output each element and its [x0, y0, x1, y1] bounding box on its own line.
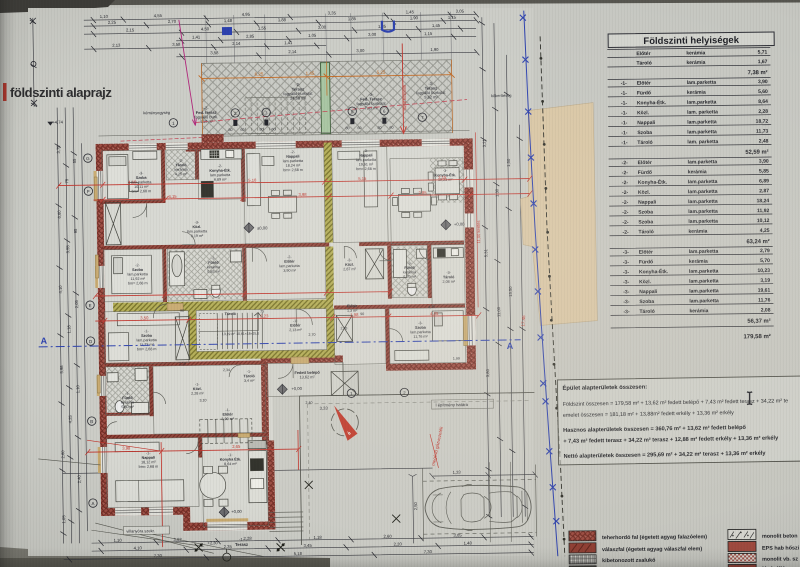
svg-text:F: F: [87, 189, 90, 194]
svg-text:lam.parketta: lam.parketta: [689, 288, 719, 294]
svg-text:75: 75: [64, 178, 69, 183]
svg-text:B: B: [90, 419, 93, 424]
svg-text:2,28 m²: 2,28 m²: [191, 391, 204, 395]
svg-text:1,88: 1,88: [278, 17, 287, 22]
svg-text:Földszinti helyiségek: Földszinti helyiségek: [643, 35, 739, 47]
svg-text:Előtér: Előtér: [636, 51, 650, 57]
svg-text:4,35: 4,35: [428, 305, 435, 309]
svg-text:A: A: [41, 336, 48, 346]
svg-text:10,23: 10,23: [757, 268, 770, 274]
svg-text:Előtér: Előtér: [638, 160, 652, 166]
svg-text:-1-: -1-: [621, 120, 628, 126]
svg-text:Tároló: Tároló: [225, 312, 237, 316]
svg-text:2,85: 2,85: [418, 190, 427, 195]
svg-text:2,10: 2,10: [179, 362, 186, 366]
svg-text:8,64: 8,64: [758, 99, 768, 105]
svg-text:kéményegység: kéményegység: [143, 110, 170, 115]
svg-text:Közl.: Közl.: [638, 190, 651, 196]
svg-text:kőkerítésvg: kőkerítésvg: [491, 93, 512, 98]
svg-text:1,05: 1,05: [308, 33, 317, 38]
svg-text:7,30: 7,30: [424, 549, 433, 554]
svg-text:1,45: 1,45: [406, 9, 415, 14]
svg-text:-3-: -3-: [623, 270, 630, 276]
svg-text:+4,74: +4,74: [52, 119, 63, 124]
svg-text:-2-: -2-: [622, 190, 629, 196]
svg-text:5,31: 5,31: [483, 248, 488, 257]
svg-text:11,00 kerítés: 11,00 kerítés: [476, 220, 481, 243]
svg-text:lam.parketta: lam.parketta: [187, 229, 208, 233]
svg-text:2,48: 2,48: [340, 326, 347, 330]
svg-text:bm= 2,68 m: bm= 2,68 m: [139, 465, 159, 469]
svg-text:3,80: 3,80: [485, 368, 490, 377]
svg-text:bm= 2,68 m: bm= 2,68 m: [137, 347, 157, 351]
svg-text:4,35: 4,35: [430, 311, 439, 316]
svg-text:5,18: 5,18: [294, 551, 303, 556]
svg-text:+2,30: +2,30: [208, 540, 219, 545]
svg-text:5,60: 5,60: [758, 89, 768, 95]
svg-text:80: 80: [377, 126, 381, 130]
svg-text:63,24 m²: 63,24 m²: [746, 238, 769, 245]
svg-text:13,62 m²: 13,62 m²: [299, 374, 315, 379]
svg-text:1,05: 1,05: [61, 515, 66, 524]
svg-text:4,25: 4,25: [68, 415, 73, 424]
svg-text:7,30: 7,30: [154, 553, 163, 558]
svg-text:kerámia: kerámia: [686, 50, 705, 56]
svg-text:1,33: 1,33: [453, 470, 462, 475]
svg-text:Terasz: Terasz: [235, 542, 248, 547]
svg-text:lam.parketta: lam.parketta: [410, 330, 431, 334]
svg-text:60: 60: [389, 126, 393, 130]
svg-text:tűzfal központi: tűzfal központi: [402, 85, 407, 111]
svg-text:1,90: 1,90: [410, 15, 419, 20]
svg-text:lam.parketta: lam.parketta: [356, 158, 377, 162]
svg-text:1,99: 1,99: [453, 357, 460, 361]
svg-text:1,98: 1,98: [350, 312, 359, 317]
svg-text:lam.parketta: lam.parketta: [689, 298, 719, 304]
svg-text:3,90: 3,90: [759, 159, 769, 165]
svg-text:3,58: 3,58: [172, 42, 181, 47]
svg-text:2,60: 2,60: [383, 534, 392, 539]
svg-text:3,19: 3,19: [760, 278, 770, 284]
svg-text:4,50: 4,50: [201, 26, 210, 31]
svg-text:55: 55: [72, 158, 77, 163]
svg-text:lam.parketta: lam.parketta: [688, 189, 718, 195]
svg-text:-1-: -1-: [621, 140, 628, 146]
svg-text:-1-: -1-: [621, 91, 628, 97]
svg-text:Szoba: Szoba: [637, 130, 652, 136]
svg-text:Tároló: Tároló: [638, 229, 653, 235]
svg-text:2,70: 2,70: [168, 19, 177, 24]
svg-text:Nappali: Nappali: [638, 200, 657, 206]
svg-text:1,48: 1,48: [224, 18, 233, 23]
svg-text:Közl.: Közl.: [637, 110, 650, 116]
svg-text:-1-: -1-: [621, 130, 628, 136]
svg-text:kerámia: kerámia: [686, 60, 705, 66]
svg-text:1,18: 1,18: [66, 325, 71, 334]
svg-text:1,45: 1,45: [432, 23, 441, 28]
svg-text:Konyha-Étk.: Konyha-Étk.: [209, 168, 231, 173]
svg-text:EPS hab hőszi: EPS hab hőszi: [762, 545, 800, 551]
svg-text:11,76 m²: 11,76 m²: [413, 335, 428, 339]
svg-text:2,08: 2,08: [761, 307, 771, 313]
svg-text:-2-: -2-: [622, 170, 629, 176]
svg-text:lam.parketta: lam.parketta: [127, 272, 148, 276]
svg-text:+0,00: +0,00: [231, 509, 242, 514]
svg-text:-3-: -3-: [623, 279, 630, 285]
svg-text:56,37 m²: 56,37 m²: [747, 318, 770, 325]
svg-text:4,15: 4,15: [128, 179, 137, 184]
svg-text:kerámia: kerámia: [689, 259, 708, 265]
svg-text:-1-: -1-: [621, 81, 628, 87]
svg-text:1,15: 1,15: [448, 15, 457, 20]
svg-text:17,46: 17,46: [520, 315, 526, 327]
svg-text:1,55: 1,55: [258, 25, 267, 30]
svg-text:80: 80: [259, 128, 263, 132]
svg-text:lam.parketta: lam.parketta: [687, 119, 717, 125]
svg-text:lam.parketta: lam.parketta: [688, 179, 718, 185]
svg-text:2,25: 2,25: [108, 20, 117, 25]
svg-text:lam. parketta: lam. parketta: [687, 139, 718, 145]
svg-text:90: 90: [180, 309, 184, 313]
svg-text:19,61: 19,61: [758, 288, 771, 294]
svg-text:2,23: 2,23: [260, 313, 269, 318]
svg-text:4,25: 4,25: [760, 228, 770, 234]
svg-text:lam.parketta: lam.parketta: [688, 199, 718, 205]
svg-text:9,62 m²: 9,62 m²: [424, 94, 438, 99]
svg-text:11,76: 11,76: [758, 298, 771, 304]
svg-text:2,14: 2,14: [232, 41, 241, 46]
svg-text:2,34: 2,34: [223, 368, 230, 372]
svg-text:Előtér: Előtér: [222, 412, 233, 416]
svg-text:villanyóra szekr.: villanyóra szekr.: [126, 528, 155, 533]
svg-text:3,33: 3,33: [320, 406, 329, 411]
svg-text:lam.parketta: lam.parketta: [687, 129, 717, 135]
svg-text:2,87: 2,87: [759, 188, 769, 194]
svg-text:2,08 m²: 2,08 m²: [442, 280, 455, 284]
svg-text:-2-: -2-: [622, 180, 629, 186]
svg-text:2,65: 2,65: [232, 444, 241, 449]
svg-text:1,67: 1,67: [758, 59, 768, 65]
svg-text:lam.parketta: lam.parketta: [688, 209, 718, 215]
svg-text:1,48: 1,48: [464, 540, 473, 545]
svg-text:lam.parketta: lam.parketta: [689, 268, 719, 274]
svg-text:A: A: [91, 501, 94, 506]
svg-text:lam.parketta: lam.parketta: [688, 219, 718, 225]
svg-text:Tároló: Tároló: [636, 60, 651, 66]
svg-text:60: 60: [271, 127, 275, 131]
svg-text:2,85: 2,85: [246, 34, 255, 39]
svg-text:+0,00: +0,00: [291, 386, 302, 391]
svg-text:1,41: 1,41: [284, 40, 293, 45]
svg-text:-2-: -2-: [622, 160, 629, 166]
svg-text:3,35: 3,35: [328, 10, 337, 15]
svg-text:3,00: 3,00: [356, 48, 365, 53]
svg-text:3,45: 3,45: [304, 543, 313, 548]
svg-text:lam. parketta: lam. parketta: [687, 109, 718, 115]
svg-text:1,10: 1,10: [114, 538, 123, 543]
svg-text:lam.parketta: lam.parketta: [687, 99, 717, 105]
svg-text:18,72: 18,72: [756, 119, 769, 125]
svg-text:1,30: 1,30: [494, 188, 499, 197]
svg-text:95: 95: [73, 228, 78, 233]
svg-text:4,10: 4,10: [58, 285, 63, 294]
svg-text:lam.parketta: lam.parketta: [689, 249, 719, 255]
svg-text:-3-: -3-: [623, 260, 630, 266]
svg-text:6,89: 6,89: [759, 178, 769, 184]
svg-text:80: 80: [228, 128, 232, 132]
svg-text:2,35: 2,35: [224, 544, 233, 549]
svg-text:-2-: -2-: [622, 230, 629, 236]
svg-text:2,60: 2,60: [60, 450, 65, 459]
svg-text:Fürdő: Fürdő: [639, 259, 653, 265]
svg-text:1,85: 1,85: [348, 16, 357, 21]
svg-text:kerámia: kerámia: [689, 308, 708, 314]
svg-text:2,28: 2,28: [758, 109, 768, 115]
svg-text:4,10: 4,10: [134, 545, 143, 550]
svg-text:válaszfal (égetett agyag válas: válaszfal (égetett agyag válaszfal elem): [602, 546, 702, 553]
svg-text:2,13 m²: 2,13 m²: [289, 328, 302, 332]
svg-text:18,24: 18,24: [757, 198, 770, 204]
svg-text:24,60 m²: 24,60 m²: [290, 95, 307, 100]
svg-text:90: 90: [360, 312, 364, 316]
svg-text:3,50: 3,50: [140, 315, 149, 320]
svg-text:10,12: 10,12: [757, 218, 770, 224]
svg-text:1,15: 1,15: [424, 31, 433, 36]
svg-text:földszinti alaprajz: földszinti alaprajz: [10, 85, 112, 100]
svg-text:Nappali: Nappali: [637, 120, 656, 126]
svg-text:Előtér: Előtér: [639, 249, 653, 255]
svg-text:-3-: -3-: [623, 309, 630, 315]
svg-text:1,50: 1,50: [506, 158, 511, 167]
svg-text:1,41: 1,41: [192, 34, 201, 39]
svg-text:lam.parketta: lam.parketta: [283, 159, 304, 163]
svg-text:8,64 m²: 8,64 m²: [224, 462, 237, 466]
svg-text:4,25 m²: 4,25 m²: [175, 172, 188, 176]
svg-text:5,60 m²: 5,60 m²: [121, 405, 134, 409]
svg-text:1,18: 1,18: [313, 535, 322, 540]
svg-text:2,15: 2,15: [438, 175, 447, 180]
svg-text:3,90 m²: 3,90 m²: [283, 269, 296, 273]
svg-text:Előtér: Előtér: [347, 304, 358, 308]
svg-text:lam.parketta: lam.parketta: [688, 159, 718, 165]
svg-text:Tároló: Tároló: [637, 140, 652, 146]
svg-text:6,89 m²: 6,89 m²: [214, 178, 227, 182]
svg-text:monolit vb. sz: monolit vb. sz: [762, 556, 798, 562]
svg-text:lam.parketta: lam.parketta: [279, 264, 300, 268]
svg-text:kerámia: kerámia: [688, 229, 707, 235]
svg-text:2,28: 2,28: [243, 536, 252, 541]
svg-text:6,60: 6,60: [57, 210, 62, 219]
svg-text:3,05: 3,05: [456, 9, 465, 14]
svg-text:kibetonozott zsalukő: kibetonozott zsalukő: [602, 558, 656, 564]
svg-text:7,38 m²: 7,38 m²: [748, 69, 768, 76]
svg-text:Előtér: Előtér: [284, 260, 295, 264]
svg-text:bm= 2,68 m: bm= 2,68 m: [132, 189, 152, 193]
svg-text:Szoba: Szoba: [638, 219, 653, 225]
svg-text:G: G: [86, 156, 90, 161]
svg-text:5,70: 5,70: [760, 258, 770, 264]
svg-text:11,92: 11,92: [757, 208, 770, 214]
svg-text:-2-: -2-: [622, 210, 629, 216]
svg-text:-3-: -3-: [623, 299, 630, 305]
svg-text:Közl.: Közl.: [345, 263, 354, 267]
svg-text:-3-: -3-: [623, 289, 630, 295]
svg-text:3,4 m²: 3,4 m²: [244, 379, 255, 383]
svg-text:6,25: 6,25: [255, 72, 264, 77]
svg-text:Konyha Étk.: Konyha Étk.: [220, 456, 241, 461]
svg-text:1,10: 1,10: [75, 384, 80, 393]
svg-text:lam.parketta: lam.parketta: [210, 173, 231, 177]
svg-text:Fürdő: Fürdő: [638, 170, 652, 176]
svg-text:60: 60: [357, 126, 361, 130]
svg-text:2,05: 2,05: [74, 299, 79, 308]
svg-text:2,50: 2,50: [413, 501, 418, 510]
svg-text:3,58: 3,58: [210, 50, 219, 55]
svg-text:-3-: -3-: [623, 250, 630, 256]
svg-text:Közl.: Közl.: [639, 279, 652, 285]
svg-text:monolit beton: monolit beton: [762, 533, 798, 539]
svg-text:lam.parketta: lam.parketta: [136, 338, 157, 342]
svg-text:Közl.: Közl.: [192, 225, 201, 229]
svg-text:3,00: 3,00: [318, 25, 327, 30]
svg-text:5,85: 5,85: [759, 168, 769, 174]
svg-text:4,15: 4,15: [168, 194, 177, 199]
svg-text:Előtér: Előtér: [290, 323, 301, 327]
svg-text:kerámia: kerámia: [687, 90, 706, 96]
svg-text:-1-: -1-: [621, 101, 628, 107]
svg-text:4,55: 4,55: [154, 13, 163, 18]
svg-text:3,90 m²: 3,90 m²: [221, 417, 234, 421]
svg-text:Tároló: Tároló: [639, 309, 654, 315]
svg-text:52,59 m²: 52,59 m²: [745, 149, 768, 156]
svg-text:l építmény határa: l építmény határa: [436, 402, 469, 407]
svg-text:bm= 2,68 m: bm= 2,68 m: [283, 168, 303, 172]
svg-text:-2-: -2-: [622, 200, 629, 206]
svg-text:E: E: [89, 303, 92, 308]
svg-text:2,40: 2,40: [77, 474, 82, 483]
svg-text:60: 60: [240, 128, 244, 132]
svg-text:Előtér: Előtér: [637, 80, 651, 86]
svg-text:kerámia: kerámia: [688, 169, 707, 175]
svg-text:4,95: 4,95: [242, 12, 251, 17]
svg-text:lam.parketta: lam.parketta: [687, 80, 717, 86]
svg-text:11,00: 11,00: [496, 306, 501, 317]
svg-text:5,98: 5,98: [59, 365, 64, 374]
svg-text:3,90: 3,90: [758, 79, 768, 85]
svg-text:3,19 m²: 3,19 m²: [191, 234, 204, 238]
svg-text:2,48: 2,48: [759, 138, 769, 144]
svg-text:5,85 m²: 5,85 m²: [207, 270, 220, 274]
svg-text:5,25: 5,25: [377, 70, 386, 75]
svg-text:-1-: -1-: [621, 110, 628, 116]
svg-text:2,79: 2,79: [760, 248, 770, 254]
svg-text:±0,00: ±0,00: [257, 225, 268, 230]
svg-text:2,40: 2,40: [305, 401, 312, 405]
svg-text:5,10: 5,10: [248, 178, 257, 183]
svg-text:Szoba: Szoba: [638, 209, 653, 215]
svg-text:3,10: 3,10: [199, 398, 206, 402]
svg-text:2,87 m²: 2,87 m²: [343, 267, 356, 271]
svg-text:5,71: 5,71: [758, 50, 768, 56]
svg-text:Közl.: Közl.: [193, 387, 202, 391]
svg-text:80: 80: [345, 126, 349, 130]
svg-text:Fürdő: Fürdő: [637, 90, 651, 96]
svg-text:3,98: 3,98: [298, 192, 307, 197]
svg-text:2,15: 2,15: [126, 27, 135, 32]
svg-text:5,70 m²: 5,70 m²: [403, 275, 416, 279]
svg-text:A: A: [507, 341, 514, 351]
svg-text:13,19 m² 10,61×18=25,0: 13,19 m² 10,61×18=25,0: [222, 332, 259, 337]
svg-text:Szoba: Szoba: [639, 299, 654, 305]
svg-text:11,73: 11,73: [756, 129, 769, 135]
svg-text:bm= 2,68 m: bm= 2,68 m: [128, 281, 148, 285]
svg-text:2,70: 2,70: [308, 333, 315, 337]
svg-text:teherhordó fal (égetett agyag: teherhordó fal (égetett agyag falazóelem…: [602, 534, 707, 541]
svg-text:lam.parketta: lam.parketta: [689, 278, 719, 284]
svg-text:bm= 2,68 m: bm= 2,68 m: [356, 167, 376, 171]
svg-text:1,10: 1,10: [100, 14, 109, 19]
svg-text:179,58 m²: 179,58 m²: [743, 333, 770, 340]
svg-text:2,14: 2,14: [288, 49, 297, 54]
svg-text:1,45: 1,45: [306, 71, 315, 76]
svg-text:Nappali: Nappali: [639, 289, 658, 295]
svg-text:3,00: 3,00: [368, 32, 377, 37]
svg-text:1,90: 1,90: [430, 47, 439, 52]
svg-text:5,15: 5,15: [358, 176, 367, 181]
svg-text:-2-: -2-: [622, 220, 629, 226]
svg-text:3,55: 3,55: [65, 245, 70, 254]
svg-text:2,20: 2,20: [394, 542, 403, 547]
svg-text:13,50: 13,50: [508, 286, 513, 297]
svg-text:2,13: 2,13: [112, 43, 121, 48]
svg-text:+0,00: +0,00: [454, 222, 465, 227]
